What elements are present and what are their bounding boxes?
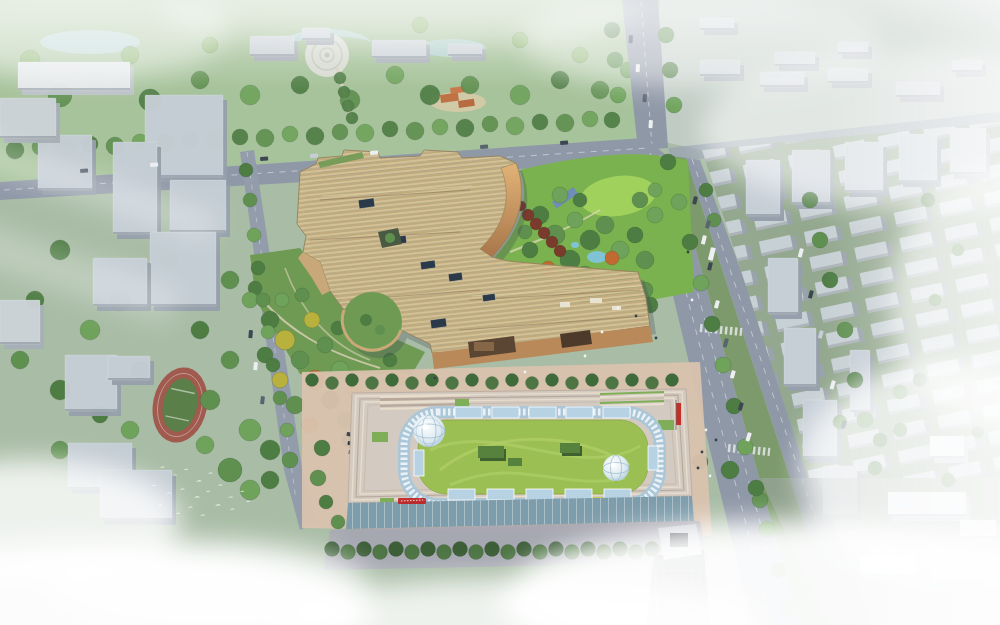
tree (356, 124, 374, 142)
pedestrian (617, 307, 620, 310)
tree (567, 212, 583, 228)
tree (260, 440, 280, 460)
tree (556, 114, 574, 132)
tree (239, 163, 253, 177)
tree (426, 374, 439, 387)
car (560, 140, 568, 145)
tree (432, 119, 448, 135)
tree (506, 117, 524, 135)
tree (573, 193, 587, 207)
tree (406, 122, 424, 140)
maroon-tree (554, 245, 566, 257)
pedestrian (434, 377, 437, 380)
tree (485, 542, 500, 557)
pedestrian (524, 371, 527, 374)
tree (693, 275, 709, 291)
tree (11, 351, 29, 369)
tree (80, 320, 100, 340)
tree (580, 230, 600, 250)
tree (646, 377, 659, 390)
tree (295, 288, 309, 302)
garden-pond (571, 242, 579, 248)
architectural-rendering (0, 0, 1000, 625)
tree (319, 495, 333, 509)
tree (346, 374, 359, 387)
garden-pond (587, 251, 607, 263)
tree (200, 390, 220, 410)
tree (748, 480, 764, 496)
tree (341, 545, 356, 560)
tree (632, 192, 648, 208)
tree (437, 545, 452, 560)
tree (121, 421, 139, 439)
tree (243, 193, 257, 207)
building-block (768, 258, 802, 319)
building-block (108, 356, 154, 385)
tree (232, 129, 248, 145)
tree (247, 228, 261, 242)
tree (406, 377, 419, 390)
tree (699, 183, 713, 197)
tree (331, 515, 345, 529)
tree (456, 119, 474, 137)
tree (715, 357, 731, 373)
tree (306, 374, 319, 387)
car (642, 94, 647, 102)
tree (326, 377, 339, 390)
tree (704, 316, 720, 332)
tree (482, 116, 498, 132)
tree (282, 452, 298, 468)
car (648, 120, 653, 128)
car (260, 156, 268, 161)
tree (240, 480, 260, 500)
pedestrian (697, 467, 700, 470)
tree (382, 121, 398, 137)
pedestrian (701, 451, 704, 454)
tree (314, 440, 330, 456)
tree (218, 458, 242, 482)
tree (586, 374, 599, 387)
tree (310, 470, 326, 486)
tree (532, 114, 548, 130)
tree (648, 183, 662, 197)
tree (671, 194, 687, 210)
tree (306, 127, 324, 145)
tree (466, 374, 479, 387)
tree (666, 374, 679, 387)
tree (506, 374, 519, 387)
tree (666, 97, 682, 113)
tree (261, 325, 275, 339)
tree (389, 542, 404, 557)
pedestrian (691, 299, 694, 302)
tree (196, 436, 214, 454)
tree (221, 271, 239, 289)
tree (221, 351, 239, 369)
tree (604, 112, 620, 128)
tree (636, 251, 654, 269)
tree (239, 419, 261, 441)
building-block (0, 98, 60, 143)
dome-east (603, 455, 629, 481)
building-block (784, 328, 820, 391)
aerial-render-canvas (0, 0, 1000, 625)
tree (251, 261, 265, 275)
tree (546, 374, 559, 387)
car (248, 330, 253, 338)
car (253, 362, 258, 370)
tree (517, 542, 532, 557)
tree (501, 545, 516, 560)
tree (275, 330, 295, 350)
tree (446, 377, 459, 390)
tree (596, 216, 614, 234)
tree (51, 441, 69, 459)
tree (582, 111, 598, 127)
tree (660, 154, 676, 170)
tree (342, 100, 354, 112)
car (150, 162, 158, 167)
tree (256, 129, 274, 147)
building-block (0, 300, 44, 349)
tree (373, 545, 388, 560)
right-haze (820, 0, 1000, 625)
tree (533, 545, 548, 560)
tree (682, 234, 698, 250)
tree (266, 358, 280, 372)
tree (317, 337, 333, 353)
tree (721, 461, 739, 479)
tree (273, 391, 287, 405)
tree (627, 227, 643, 243)
tree (191, 321, 209, 339)
tree (332, 124, 348, 140)
car (370, 150, 378, 155)
tree (486, 377, 499, 390)
tree (421, 542, 436, 557)
tree (626, 374, 639, 387)
tree (566, 377, 579, 390)
tree (647, 207, 663, 223)
tree (261, 471, 279, 489)
tree (366, 377, 379, 390)
tree (469, 545, 484, 560)
tree (606, 377, 619, 390)
car (310, 153, 318, 158)
pedestrian (687, 251, 690, 254)
tree (272, 372, 288, 388)
tree (605, 251, 619, 265)
tree (357, 542, 372, 557)
pedestrian (584, 355, 587, 358)
tree (291, 351, 309, 369)
tree (346, 112, 358, 124)
pedestrian (635, 315, 638, 318)
tree (526, 377, 539, 390)
tree (386, 374, 399, 387)
tree (286, 396, 304, 414)
car (480, 144, 488, 149)
pedestrian (705, 429, 708, 432)
red-signage (398, 498, 426, 504)
tree (453, 542, 468, 557)
pedestrian (655, 337, 658, 340)
tree (256, 293, 270, 307)
tree (282, 126, 298, 142)
tree (242, 292, 258, 308)
tree (275, 293, 289, 307)
tree (280, 423, 294, 437)
pedestrian (709, 475, 712, 478)
tree (522, 242, 538, 258)
tree (737, 439, 753, 455)
tree (405, 545, 420, 560)
tree (552, 187, 568, 203)
tree (304, 312, 320, 328)
pedestrian (601, 331, 604, 334)
pedestrian (715, 439, 718, 442)
